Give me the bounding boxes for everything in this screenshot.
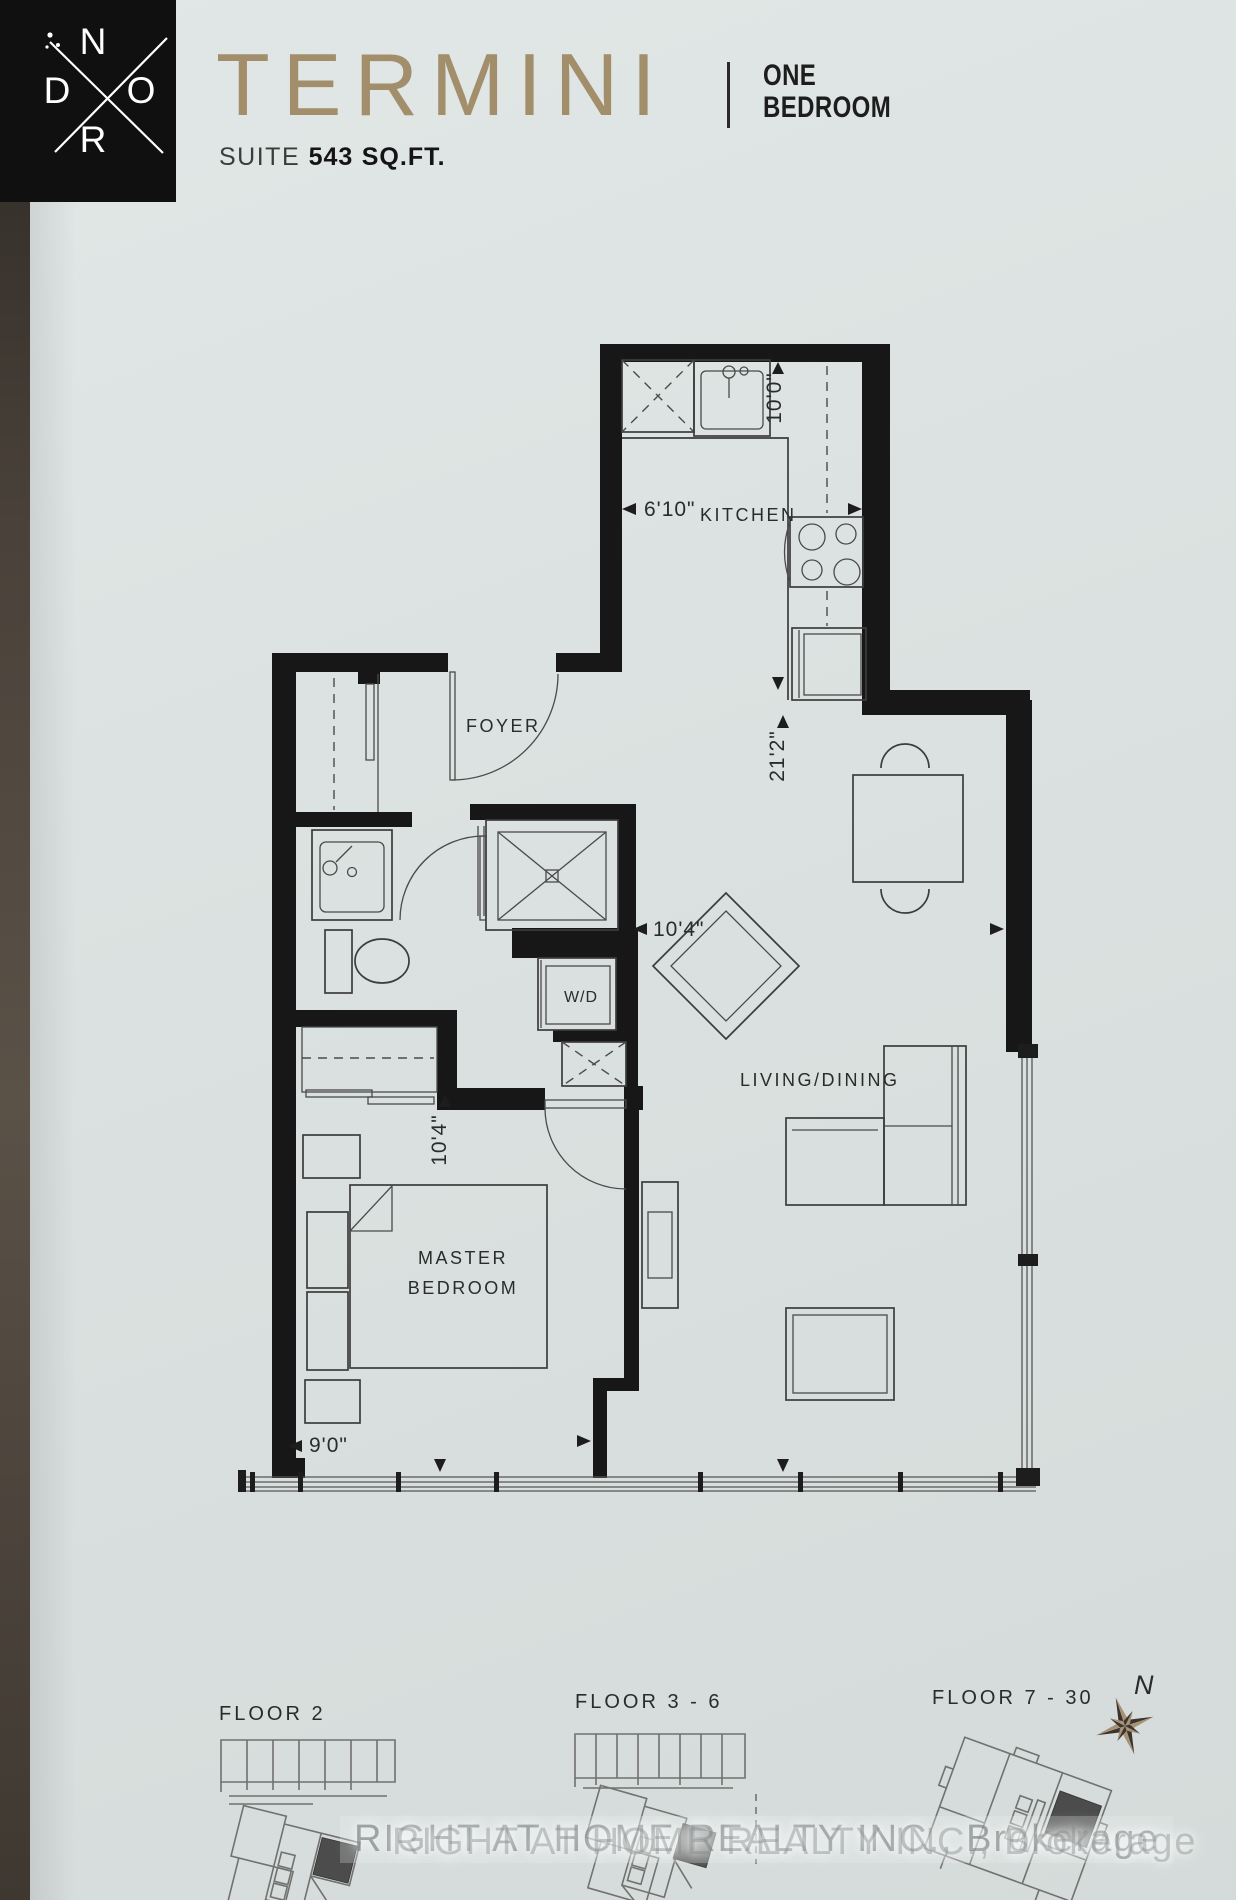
dimension-labels: 10'0" 6'10" 21'2" 10'4" 10'4" 9'0": [288, 362, 1004, 1472]
dining-chair-icon: [881, 744, 929, 768]
bedroom-closet: [302, 1027, 437, 1092]
logo-dot: [47, 32, 52, 37]
toilet-tank-icon: [325, 930, 352, 993]
dim-living-width: 10'4": [653, 918, 705, 941]
dim-bedroom-depth: 10'4": [428, 1114, 451, 1166]
foyer-label: FOYER: [466, 716, 541, 736]
bed-fold: [350, 1185, 392, 1231]
room-labels: KITCHEN FOYER LIVING/DINING MASTER BEDRO…: [408, 505, 900, 1298]
floor3-6-label: FLOOR 3 - 6: [575, 1691, 722, 1713]
dresser-icon: [307, 1292, 348, 1370]
foyer-area: [334, 672, 558, 812]
kitchen-fixtures: [622, 360, 866, 700]
dim-kitchen-width: 6'10": [644, 498, 696, 521]
logo-dot: [56, 43, 60, 47]
floor7-30-label: FLOOR 7 - 30: [932, 1687, 1094, 1709]
closet-slider-panel: [306, 1090, 372, 1097]
floor-plan: W/D: [0, 0, 1236, 1900]
compass-north-label: N: [1134, 1670, 1154, 1700]
dining-table-icon: [853, 775, 963, 882]
bed-icon: [350, 1185, 547, 1368]
watermark-ghost-text: RIGHT AT HOME REALTY INC., Brokerage: [392, 1821, 1197, 1864]
counter-edge: [622, 438, 788, 700]
master-label-line1: MASTER: [418, 1248, 508, 1268]
logo-dot: [45, 45, 48, 48]
master-label-line2: BEDROOM: [408, 1278, 519, 1298]
logo-letter-r: R: [80, 119, 107, 160]
logo-letter-n: N: [80, 21, 107, 62]
bathroom-fixtures: [312, 820, 618, 993]
coffee-table-icon: [786, 1308, 894, 1400]
stove-icon: [790, 517, 863, 587]
bedroom-door-leaf: [545, 1100, 626, 1108]
nightstand-icon: [305, 1380, 360, 1423]
wd-label: W/D: [564, 989, 598, 1006]
chaise-icon: [786, 1118, 884, 1205]
nord-logo: N D O R: [0, 0, 176, 202]
dresser-icon: [307, 1212, 348, 1288]
brokerage-watermark: RIGHT AT HOME REALTY INC., Brokerage RIG…: [340, 1816, 1173, 1863]
nightstand-icon: [303, 1135, 360, 1178]
bath-door-leaf: [480, 836, 486, 920]
dim-bedroom-width: 9'0": [309, 1434, 348, 1457]
fridge-icon: [792, 628, 866, 700]
floor2-label: FLOOR 2: [219, 1703, 326, 1725]
foyer-closet-door: [366, 684, 374, 760]
dim-kitchen-depth: 10'0": [763, 372, 786, 424]
living-dining-label: LIVING/DINING: [740, 1070, 900, 1090]
logo-letter-o: O: [127, 70, 156, 111]
armchair-icon: [653, 893, 799, 1039]
entry-door-leaf: [450, 672, 455, 780]
nord-logo-art: N D O R: [0, 0, 176, 202]
bedroom-door-swing: [545, 1108, 626, 1189]
dining-chair-icon: [881, 889, 929, 913]
bath-faucet-icon: [323, 861, 337, 875]
dim-living-depth: 21'2": [766, 730, 789, 782]
logo-letter-d: D: [44, 70, 71, 111]
keyplan-floor7-30: [912, 1727, 1122, 1900]
closet-slider-panel: [368, 1097, 434, 1104]
kitchen-label: KITCHEN: [700, 505, 797, 525]
vanity-icon: [312, 830, 392, 920]
faucet-icon: [723, 366, 735, 378]
toilet-bowl-icon: [355, 939, 409, 983]
bath-door-swing: [400, 836, 484, 920]
